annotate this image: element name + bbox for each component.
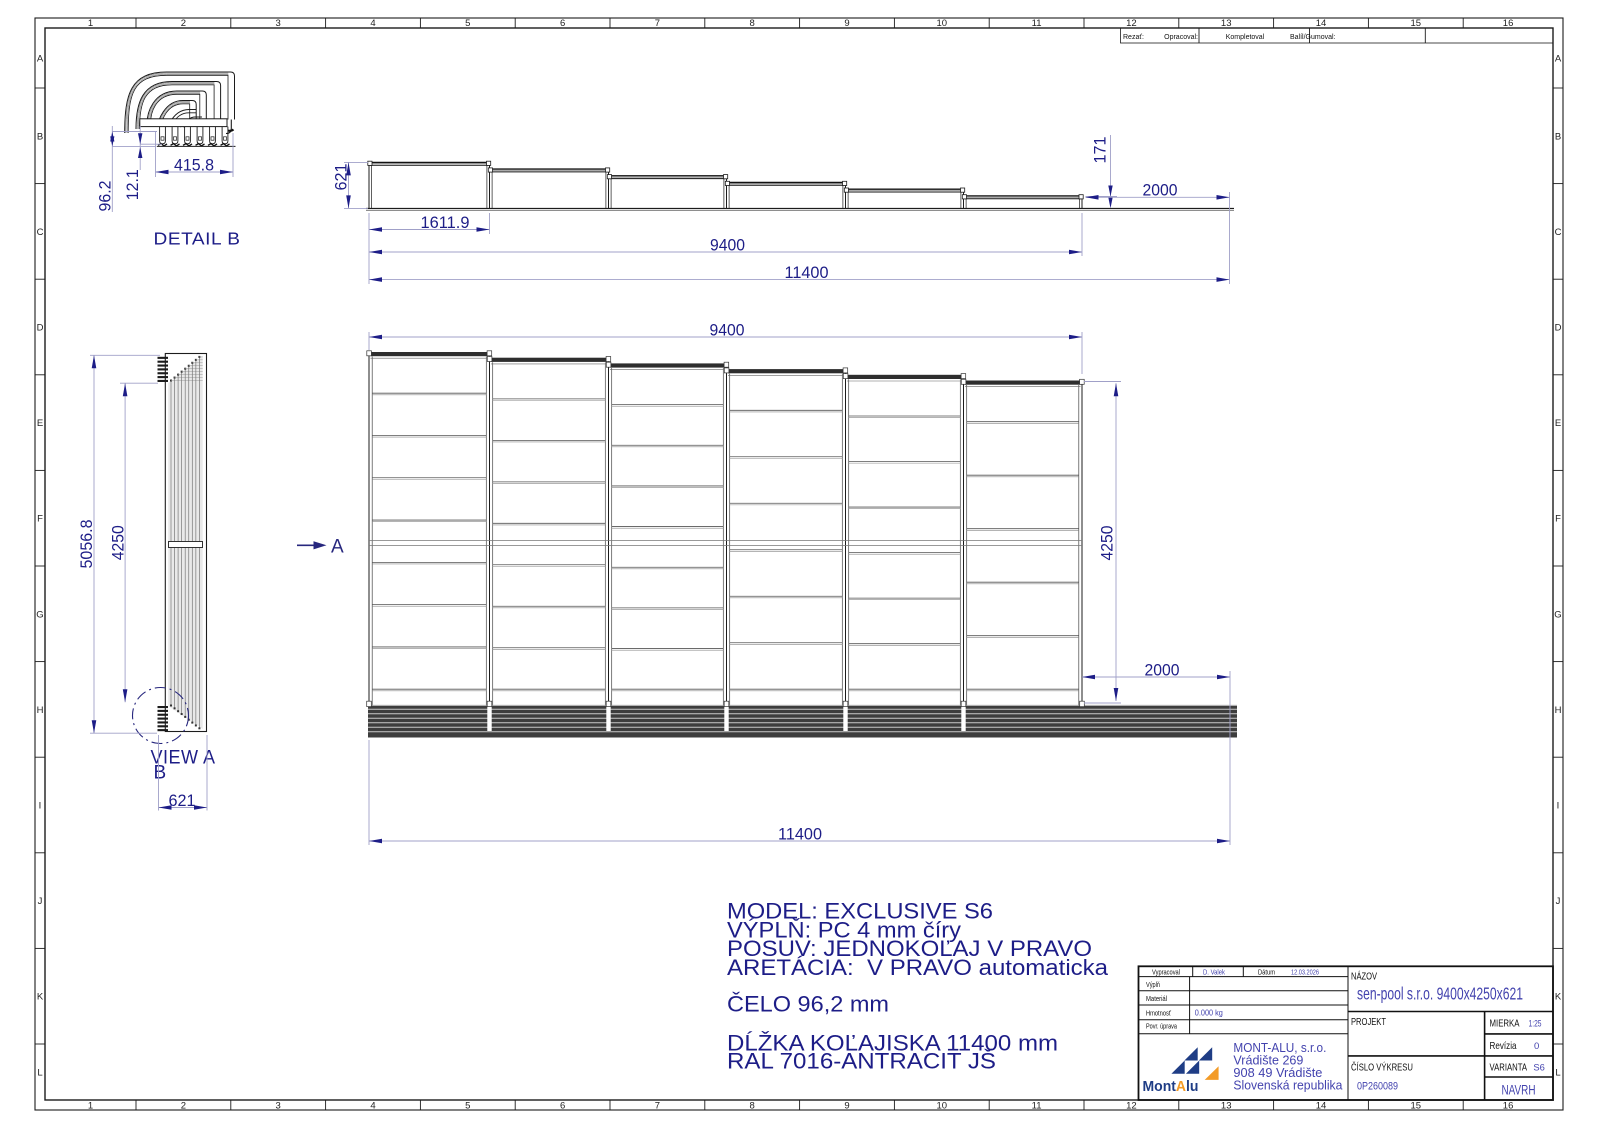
svg-text:2000: 2000 xyxy=(1143,181,1178,200)
svg-text:I: I xyxy=(39,801,42,812)
svg-text:16: 16 xyxy=(1503,1101,1514,1112)
svg-text:10: 10 xyxy=(937,18,948,29)
svg-text:1611.9: 1611.9 xyxy=(421,213,470,232)
svg-text:Vypracoval: Vypracoval xyxy=(1152,968,1180,977)
svg-text:7: 7 xyxy=(655,18,660,29)
svg-text:ČÍSLO VÝKRESU: ČÍSLO VÝKRESU xyxy=(1351,1061,1413,1074)
svg-text:sen-pool s.r.o. 9400x4250x621: sen-pool s.r.o. 9400x4250x621 xyxy=(1357,984,1523,1004)
svg-text:4: 4 xyxy=(370,1101,375,1112)
svg-text:E: E xyxy=(37,418,43,429)
svg-text:J: J xyxy=(38,896,43,907)
svg-text:3: 3 xyxy=(276,1101,281,1112)
svg-text:1: 1 xyxy=(88,18,93,29)
svg-text:A: A xyxy=(37,54,44,65)
svg-text:9: 9 xyxy=(844,1101,849,1112)
svg-text:11400: 11400 xyxy=(785,263,829,282)
svg-text:B: B xyxy=(1555,131,1561,142)
svg-text:F: F xyxy=(37,514,43,525)
svg-text:13: 13 xyxy=(1221,18,1232,29)
svg-text:H: H xyxy=(1555,705,1562,716)
svg-text:12: 12 xyxy=(1126,1101,1137,1112)
svg-text:A: A xyxy=(1555,54,1562,65)
svg-text:7: 7 xyxy=(655,1101,660,1112)
svg-text:96.2: 96.2 xyxy=(96,181,115,212)
svg-text:Dátum: Dátum xyxy=(1258,968,1275,977)
svg-text:2: 2 xyxy=(181,1101,186,1112)
svg-text:6: 6 xyxy=(560,18,565,29)
svg-text:Rezať:: Rezať: xyxy=(1123,34,1144,41)
svg-text:PROJEKT: PROJEKT xyxy=(1351,1016,1386,1028)
svg-text:10: 10 xyxy=(937,1101,948,1112)
svg-text:0: 0 xyxy=(1534,1041,1539,1052)
svg-text:VARIANTA: VARIANTA xyxy=(1490,1062,1528,1074)
svg-text:0P260089: 0P260089 xyxy=(1357,1081,1398,1093)
svg-text:NÁZOV: NÁZOV xyxy=(1351,970,1377,983)
svg-text:9400: 9400 xyxy=(710,321,745,340)
svg-text:K: K xyxy=(1555,992,1562,1003)
svg-text:Opracoval:: Opracoval: xyxy=(1164,34,1198,41)
svg-text:171: 171 xyxy=(1091,137,1110,164)
svg-text:K: K xyxy=(37,992,44,1003)
svg-text:2: 2 xyxy=(181,18,186,29)
svg-text:5: 5 xyxy=(465,18,470,29)
svg-text:D: D xyxy=(1555,323,1562,334)
svg-text:13: 13 xyxy=(1221,1101,1232,1112)
svg-text:1:25: 1:25 xyxy=(1529,1019,1542,1030)
svg-text:14: 14 xyxy=(1316,1101,1327,1112)
svg-text:Balíl/Gumoval:: Balíl/Gumoval: xyxy=(1290,34,1336,41)
svg-text:Povr. úprava: Povr. úprava xyxy=(1146,1021,1178,1030)
svg-text:C: C xyxy=(37,227,44,238)
svg-text:621: 621 xyxy=(169,791,196,810)
svg-text:4250: 4250 xyxy=(1098,526,1117,561)
svg-text:3: 3 xyxy=(276,18,281,29)
svg-text:RAL 7016-ANTRACIT JŠ: RAL 7016-ANTRACIT JŠ xyxy=(727,1049,996,1074)
svg-text:8: 8 xyxy=(750,18,755,29)
svg-text:2000: 2000 xyxy=(1145,660,1180,679)
svg-text:8: 8 xyxy=(750,1101,755,1112)
svg-text:621: 621 xyxy=(332,164,351,191)
svg-text:0.000 kg: 0.000 kg xyxy=(1195,1008,1223,1018)
svg-text:16: 16 xyxy=(1503,18,1514,29)
svg-text:11400: 11400 xyxy=(778,824,822,843)
svg-text:G: G xyxy=(1554,609,1561,620)
svg-text:12: 12 xyxy=(1126,18,1137,29)
svg-text:12.03.2026: 12.03.2026 xyxy=(1291,968,1319,977)
svg-text:12.1: 12.1 xyxy=(123,169,142,200)
svg-text:5056.8: 5056.8 xyxy=(77,520,96,569)
svg-text:Kompletoval: Kompletoval xyxy=(1226,34,1265,41)
svg-text:D. Valek: D. Valek xyxy=(1203,968,1225,977)
svg-text:Hmotnosť: Hmotnosť xyxy=(1146,1009,1171,1018)
svg-text:Materiál: Materiál xyxy=(1146,994,1167,1003)
svg-text:5: 5 xyxy=(465,1101,470,1112)
svg-text:E: E xyxy=(1555,418,1561,429)
svg-text:Revízia: Revízia xyxy=(1490,1040,1517,1052)
svg-text:9: 9 xyxy=(844,18,849,29)
svg-text:4: 4 xyxy=(370,18,375,29)
svg-text:11: 11 xyxy=(1032,18,1042,29)
svg-text:14: 14 xyxy=(1316,18,1327,29)
svg-text:4250: 4250 xyxy=(109,525,128,560)
svg-text:415.8: 415.8 xyxy=(174,155,214,174)
svg-text:I: I xyxy=(1557,801,1560,812)
svg-text:S6: S6 xyxy=(1533,1063,1545,1074)
svg-text:1: 1 xyxy=(88,1101,93,1112)
svg-text:MIERKA: MIERKA xyxy=(1490,1018,1520,1030)
svg-text:J: J xyxy=(1556,896,1561,907)
svg-text:A: A xyxy=(331,537,344,558)
svg-text:ARETÁCIA: V PRAVO automaticka: ARETÁCIA: V PRAVO automaticka xyxy=(727,955,1109,980)
svg-text:9400: 9400 xyxy=(710,236,745,255)
svg-text:L: L xyxy=(37,1068,42,1079)
svg-text:6: 6 xyxy=(560,1101,565,1112)
svg-text:MontAlu: MontAlu xyxy=(1143,1079,1199,1095)
svg-text:15: 15 xyxy=(1411,18,1422,29)
svg-text:ČELO 96,2 mm: ČELO 96,2 mm xyxy=(727,992,889,1017)
svg-text:F: F xyxy=(1555,514,1561,525)
svg-text:H: H xyxy=(37,705,44,716)
svg-text:Slovenská republika: Slovenská republika xyxy=(1233,1079,1342,1093)
svg-text:B: B xyxy=(154,763,167,784)
svg-text:D: D xyxy=(37,323,44,334)
svg-text:15: 15 xyxy=(1411,1101,1422,1112)
svg-text:B: B xyxy=(37,131,43,142)
svg-text:DETAIL B: DETAIL B xyxy=(154,229,241,249)
svg-text:L: L xyxy=(1555,1068,1560,1079)
svg-text:C: C xyxy=(1555,227,1562,238)
svg-text:11: 11 xyxy=(1032,1101,1042,1112)
svg-text:NAVRH: NAVRH xyxy=(1502,1083,1536,1098)
svg-text:G: G xyxy=(36,609,43,620)
svg-text:Výplň: Výplň xyxy=(1146,980,1160,989)
